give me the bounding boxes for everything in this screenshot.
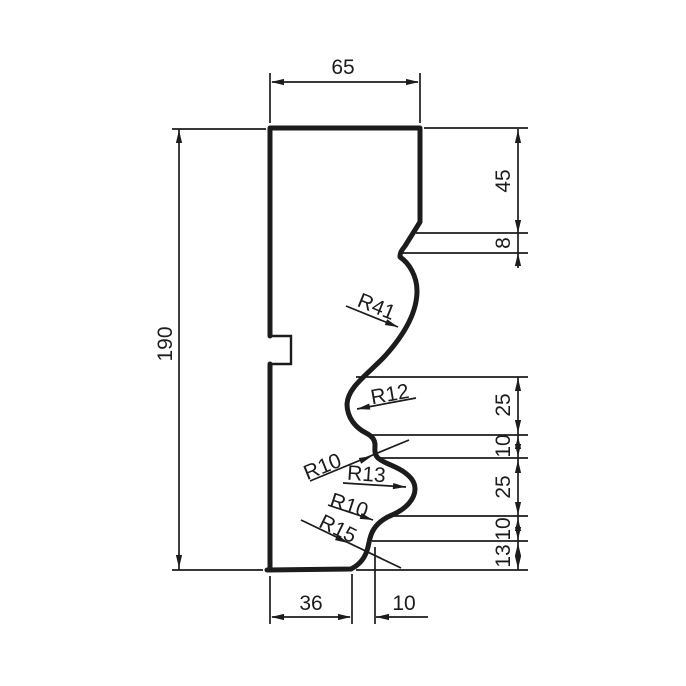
dim-label-13: 13 [492, 544, 515, 567]
dim-label-45: 45 [492, 169, 515, 192]
radius-label-r12: R12 [369, 380, 411, 409]
radius-label-r13: R13 [346, 462, 386, 488]
radius-labels: R41 R12 R10 R13 R10 R15 [300, 289, 410, 548]
r12-arrow [356, 403, 370, 412]
dim-label-8: 8 [492, 237, 515, 249]
dim-label-bottom-10: 10 [392, 592, 415, 615]
dim-label-36: 36 [299, 592, 322, 615]
profile-back-groove [271, 336, 291, 364]
radius-label-r10a: R10 [300, 449, 344, 485]
dim-label-25b: 25 [492, 475, 515, 498]
radius-label-r41: R41 [354, 289, 398, 325]
dim-label-top-width: 65 [331, 56, 354, 79]
dim-label-25a: 25 [492, 393, 515, 416]
dim-label-10a: 10 [492, 434, 515, 457]
dim-label-left-height: 190 [154, 326, 177, 361]
dim-label-10b: 10 [492, 517, 515, 540]
technical-drawing: 65 190 45 8 25 10 25 10 13 36 10 R41 R12… [0, 0, 686, 686]
r13-arrow [393, 483, 406, 490]
